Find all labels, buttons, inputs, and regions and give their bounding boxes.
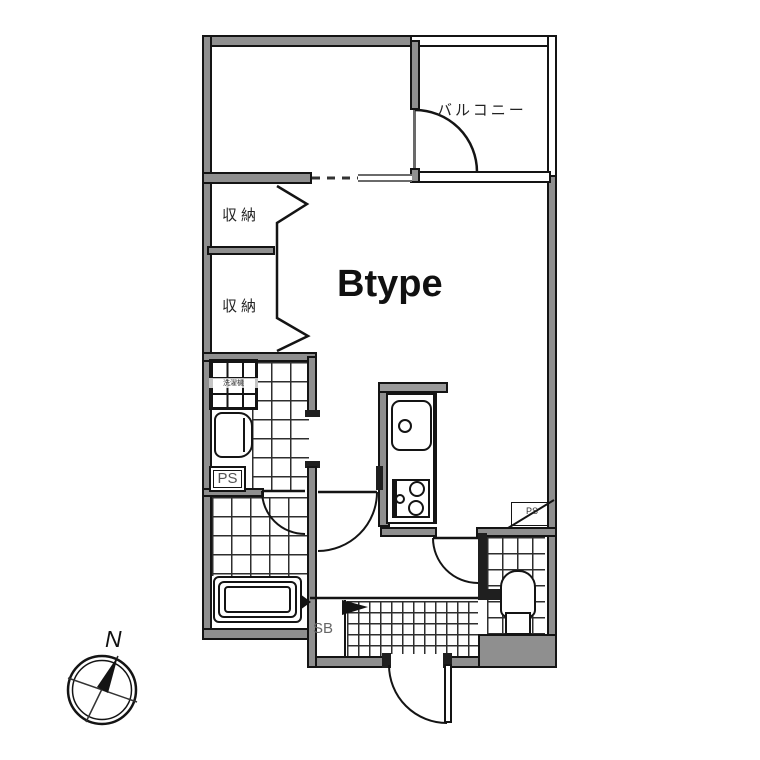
window xyxy=(358,174,412,182)
compass-outer-circle xyxy=(68,656,136,724)
washbasin xyxy=(214,412,253,458)
pipe-space-right-label: PS xyxy=(526,506,538,516)
bathtub-basin xyxy=(224,586,291,613)
wall-segment xyxy=(410,35,557,47)
range-hood xyxy=(378,382,448,393)
pipe-space-left-label: PS xyxy=(209,470,246,487)
stove-knob xyxy=(395,494,405,504)
floor-plan: 洗濯機 PS PS xyxy=(0,0,760,760)
washbasin-edge xyxy=(243,418,245,452)
closet-folding-doors xyxy=(277,186,308,351)
bathroom-tile-floor xyxy=(212,497,307,576)
sink-drain xyxy=(398,419,412,433)
wall-segment xyxy=(410,171,551,183)
room-door-arc xyxy=(433,538,478,583)
wall-segment xyxy=(547,175,557,668)
balcony-label: バルコニー xyxy=(437,99,527,120)
wall-segment xyxy=(478,533,487,593)
balcony-door-leaf xyxy=(413,110,416,168)
washer-label: 洗濯機 xyxy=(209,378,258,388)
stove-burner xyxy=(409,481,425,497)
hall-door-arc xyxy=(318,492,377,551)
door-frame xyxy=(382,653,391,668)
wall-segment xyxy=(202,172,312,184)
compass-north-label: N xyxy=(105,626,122,653)
wall-segment xyxy=(207,246,275,255)
entrance-opening xyxy=(391,654,443,670)
wall-segment xyxy=(547,35,557,180)
toilet-base xyxy=(505,612,531,635)
compass-needle xyxy=(97,656,118,693)
stove-burner xyxy=(408,500,424,516)
wall-segment xyxy=(476,527,557,537)
front-door-leaf xyxy=(444,664,452,723)
room-type-label: Btype xyxy=(337,263,443,306)
wall-segment xyxy=(478,634,557,668)
shoe-box-label: SB xyxy=(313,620,333,637)
wall-segment xyxy=(307,356,317,416)
door-frame xyxy=(376,466,383,490)
front-door-arc xyxy=(389,665,447,723)
compass-needle-line xyxy=(86,656,118,722)
wall-end-cap xyxy=(305,410,320,417)
wall-segment xyxy=(202,35,418,47)
wall-segment xyxy=(380,527,437,537)
entrance-tile-floor xyxy=(347,601,478,656)
closet-top-label: 収納 xyxy=(222,204,260,225)
compass-inner-circle xyxy=(73,661,132,720)
compass-cross-line xyxy=(68,678,137,702)
toilet-bowl xyxy=(500,570,536,618)
closet-bottom-label: 収納 xyxy=(222,295,260,316)
wall-segment xyxy=(307,466,317,668)
wall-segment xyxy=(202,628,317,640)
wall-segment xyxy=(202,35,212,640)
wall-segment xyxy=(410,40,420,110)
washroom-tile-floor xyxy=(252,362,309,490)
